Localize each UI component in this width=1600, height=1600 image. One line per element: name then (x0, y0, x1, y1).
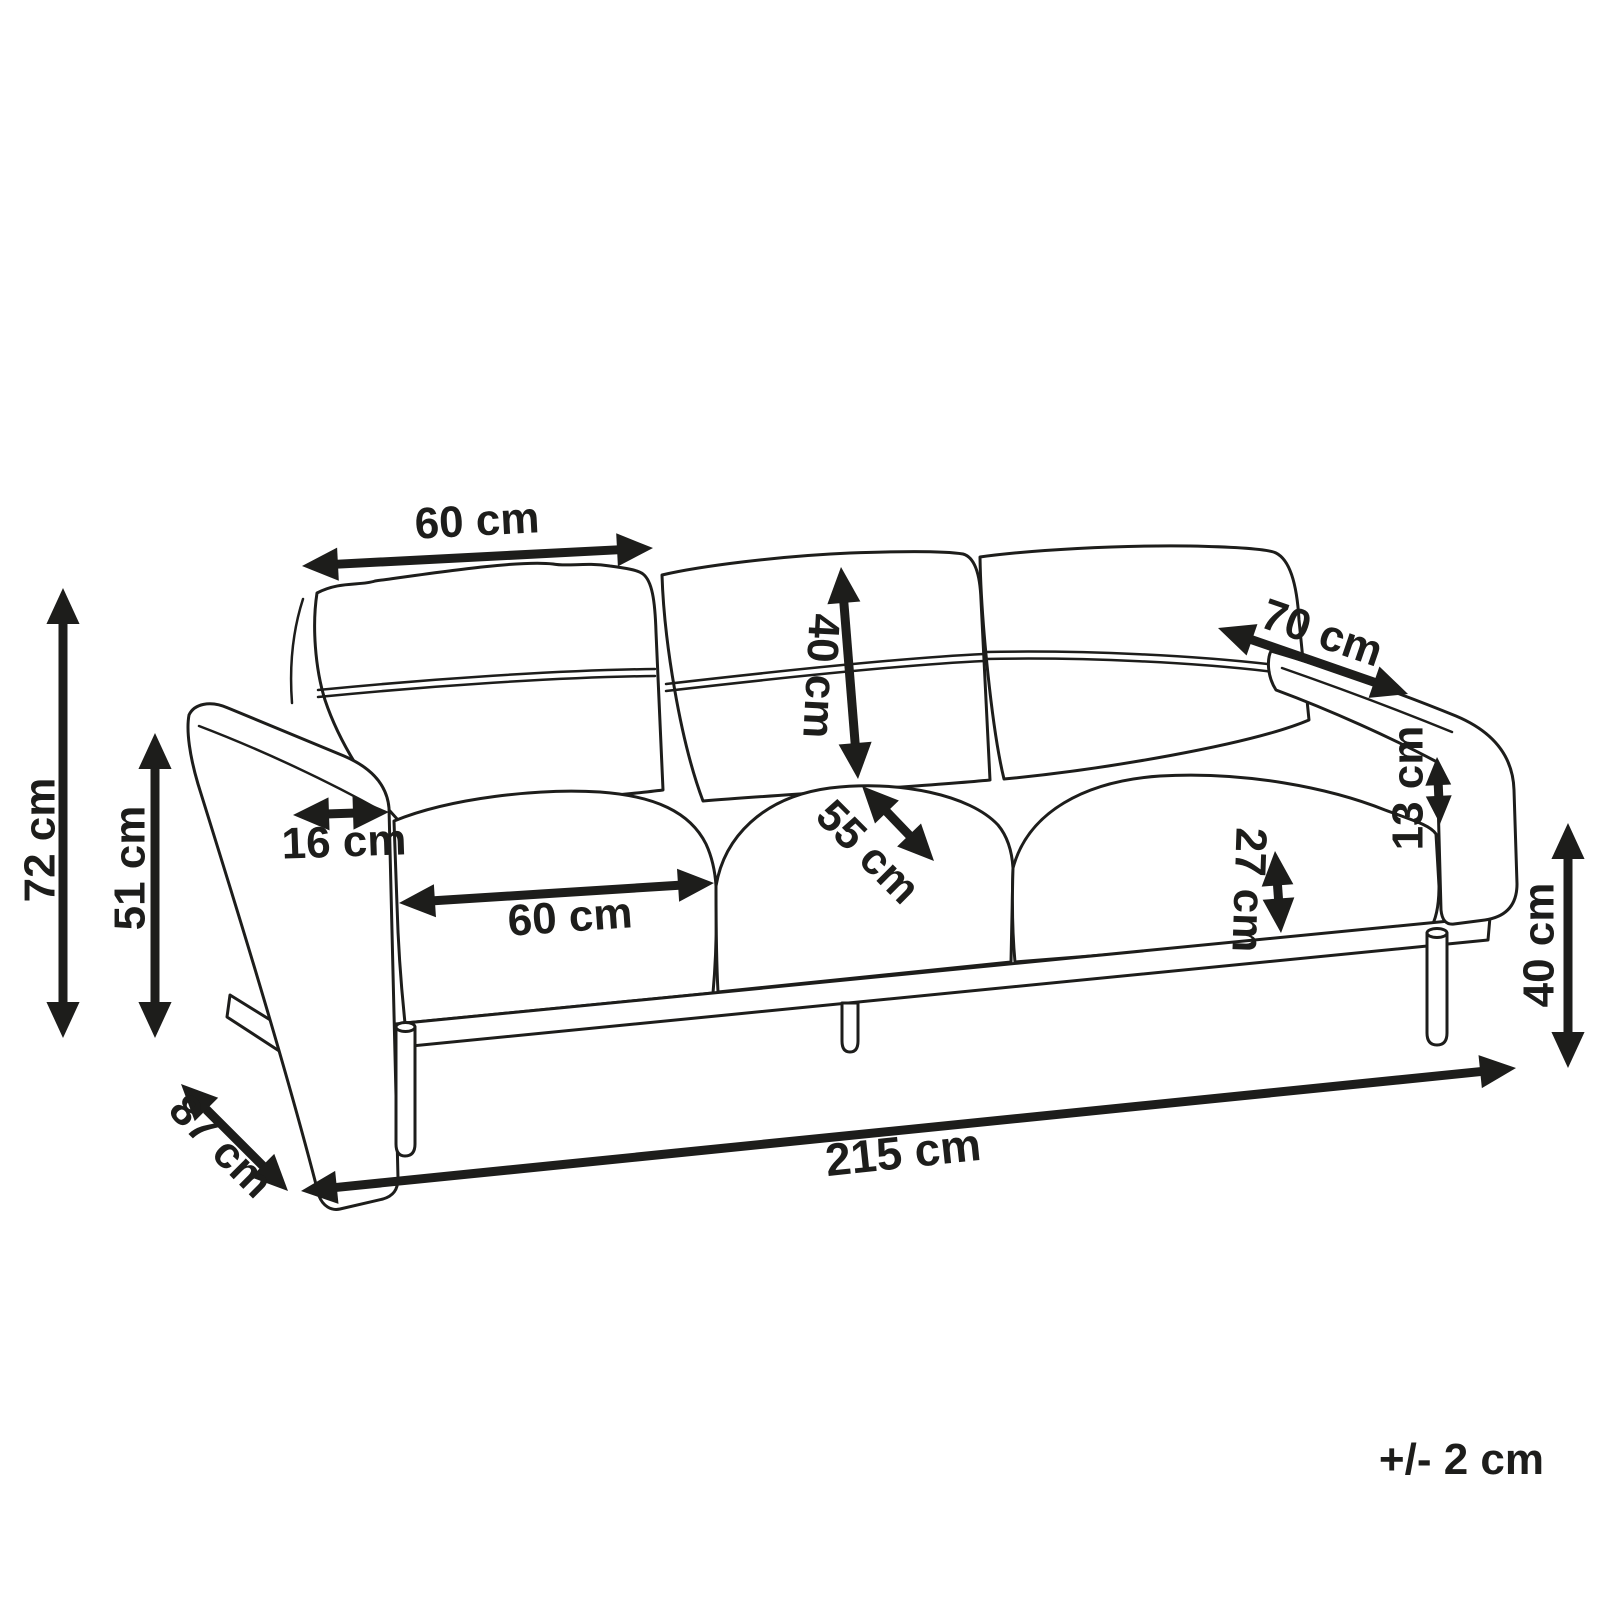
dimension-overall-width: 215 cm (301, 1055, 1516, 1204)
dimension-label-armrest-gap-height: 13 cm (1384, 726, 1433, 851)
dimension-label-seat-cushion-thickness: 27 cm (1222, 827, 1275, 953)
sofa-leg-right-top (1427, 929, 1447, 938)
dimension-label-backrest-cushion-width: 60 cm (413, 493, 540, 548)
arrowhead (46, 588, 79, 624)
dimension-label-overall-width: 215 cm (823, 1118, 984, 1186)
dimension-armrest-height: 51 cm (106, 733, 172, 1038)
dimension-label-leg-height: 40 cm (1515, 883, 1564, 1008)
dimension-label-armrest-height: 51 cm (106, 806, 155, 931)
dimension-overall-height: 72 cm (16, 588, 80, 1038)
tolerance-note: +/- 2 cm (1379, 1435, 1544, 1484)
sofa-leg-front-left-top (396, 1023, 415, 1032)
dimension-label-overall-height: 72 cm (16, 778, 65, 903)
dimension-overall-depth: 87 cm (160, 1084, 288, 1207)
arrowhead (1551, 823, 1584, 859)
sofa-leg-middle (842, 1003, 858, 1052)
sofa-back-panel-line (291, 599, 303, 703)
dimension-label-armrest-width: 16 cm (281, 815, 407, 868)
arrowhead (1551, 1032, 1584, 1068)
sofa-dimension-diagram: 60 cm72 cm51 cm16 cm60 cm40 cm55 cm70 cm… (0, 0, 1600, 1600)
arrowhead (46, 1002, 79, 1038)
diagram-canvas: 60 cm72 cm51 cm16 cm60 cm40 cm55 cm70 cm… (0, 0, 1600, 1600)
dimension-label-seat-cushion-width: 60 cm (506, 888, 634, 946)
arrowhead (616, 533, 653, 566)
dimension-label-backrest-cushion-height: 40 cm (793, 612, 848, 739)
sofa-leg-front-left (396, 1027, 415, 1156)
dimension-leg-height: 40 cm (1515, 823, 1585, 1068)
arrowhead (138, 1002, 171, 1038)
sofa-leg-right (1427, 933, 1447, 1045)
arrowhead (302, 548, 339, 581)
arrowhead (1479, 1055, 1516, 1088)
arrowhead (138, 733, 171, 769)
dimension-label-overall-depth: 87 cm (160, 1085, 283, 1208)
